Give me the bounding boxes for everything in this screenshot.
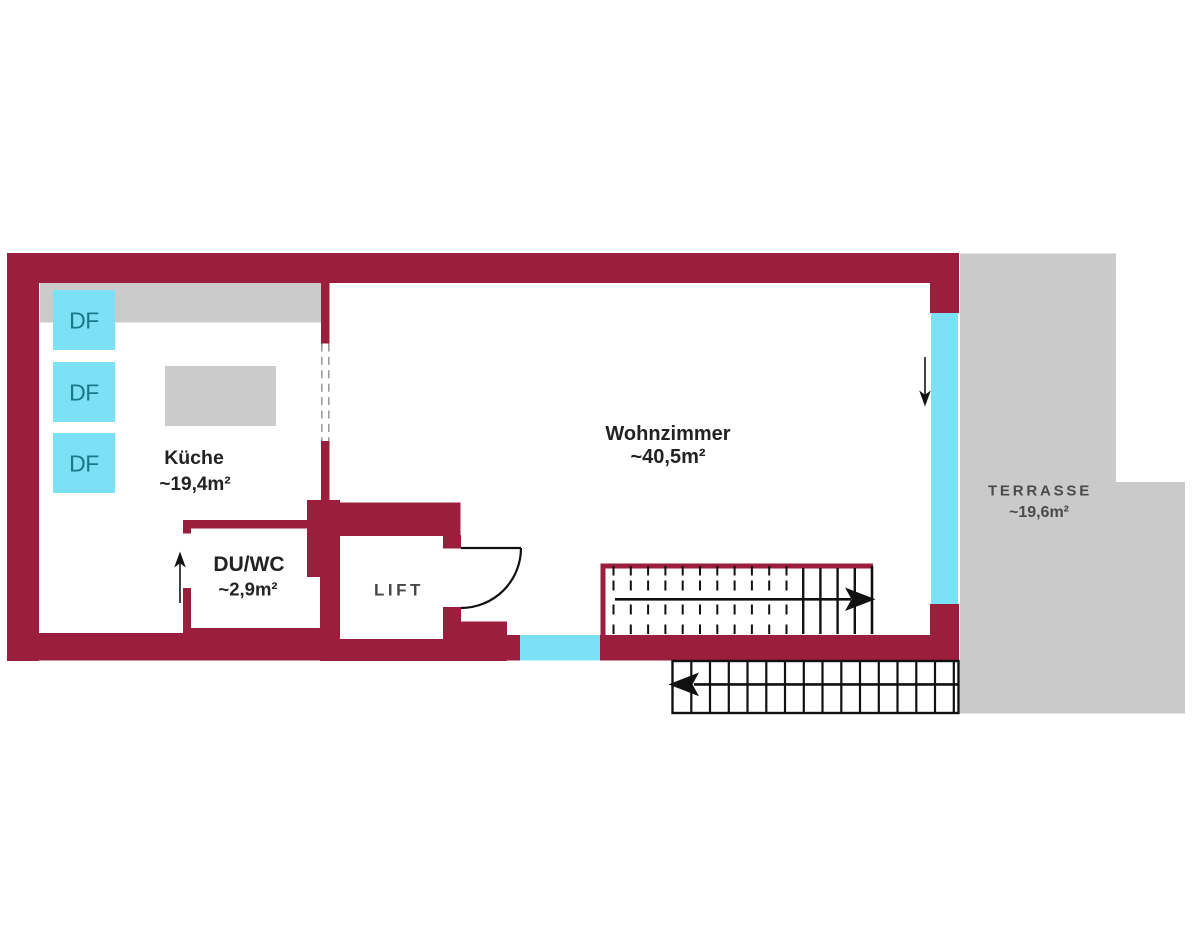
svg-text:Küche: Küche	[164, 447, 224, 469]
svg-text:~40,5m²: ~40,5m²	[630, 446, 705, 468]
svg-text:~19,6m²: ~19,6m²	[1009, 504, 1069, 521]
svg-text:LIFT: LIFT	[374, 581, 424, 600]
svg-text:~2,9m²: ~2,9m²	[218, 579, 277, 600]
svg-text:DF: DF	[69, 380, 99, 406]
svg-text:~19,4m²: ~19,4m²	[159, 474, 230, 495]
svg-text:DF: DF	[69, 308, 99, 334]
svg-text:DU/WC: DU/WC	[213, 553, 284, 576]
svg-text:TERRASSE: TERRASSE	[988, 483, 1092, 500]
svg-text:Wohnzimmer: Wohnzimmer	[605, 423, 730, 445]
svg-text:DF: DF	[69, 451, 99, 477]
